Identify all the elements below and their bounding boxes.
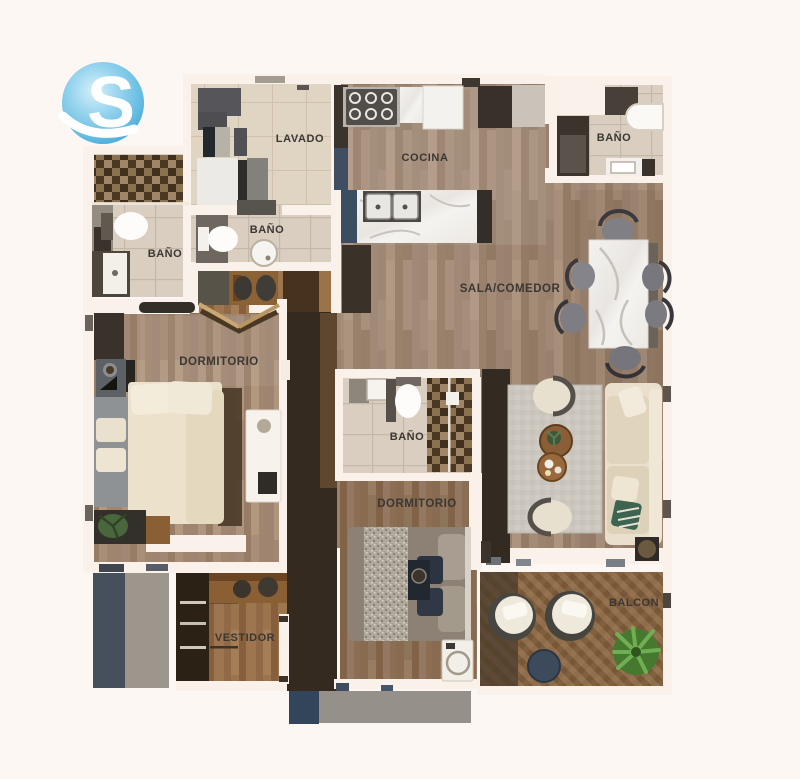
svg-text:DORMITORIO: DORMITORIO (377, 498, 457, 510)
svg-text:VESTIDOR: VESTIDOR (215, 632, 275, 644)
svg-text:DORMITORIO: DORMITORIO (179, 356, 259, 368)
svg-text:BAÑO: BAÑO (597, 131, 631, 144)
svg-text:COCINA: COCINA (402, 152, 449, 164)
svg-text:LAVADO: LAVADO (276, 133, 324, 145)
svg-text:BAÑO: BAÑO (250, 223, 284, 236)
svg-text:BAÑO: BAÑO (148, 247, 182, 260)
svg-text:BAÑO: BAÑO (390, 430, 424, 443)
svg-text:BALCON: BALCON (609, 597, 659, 609)
svg-text:SALA/COMEDOR: SALA/COMEDOR (460, 283, 561, 295)
